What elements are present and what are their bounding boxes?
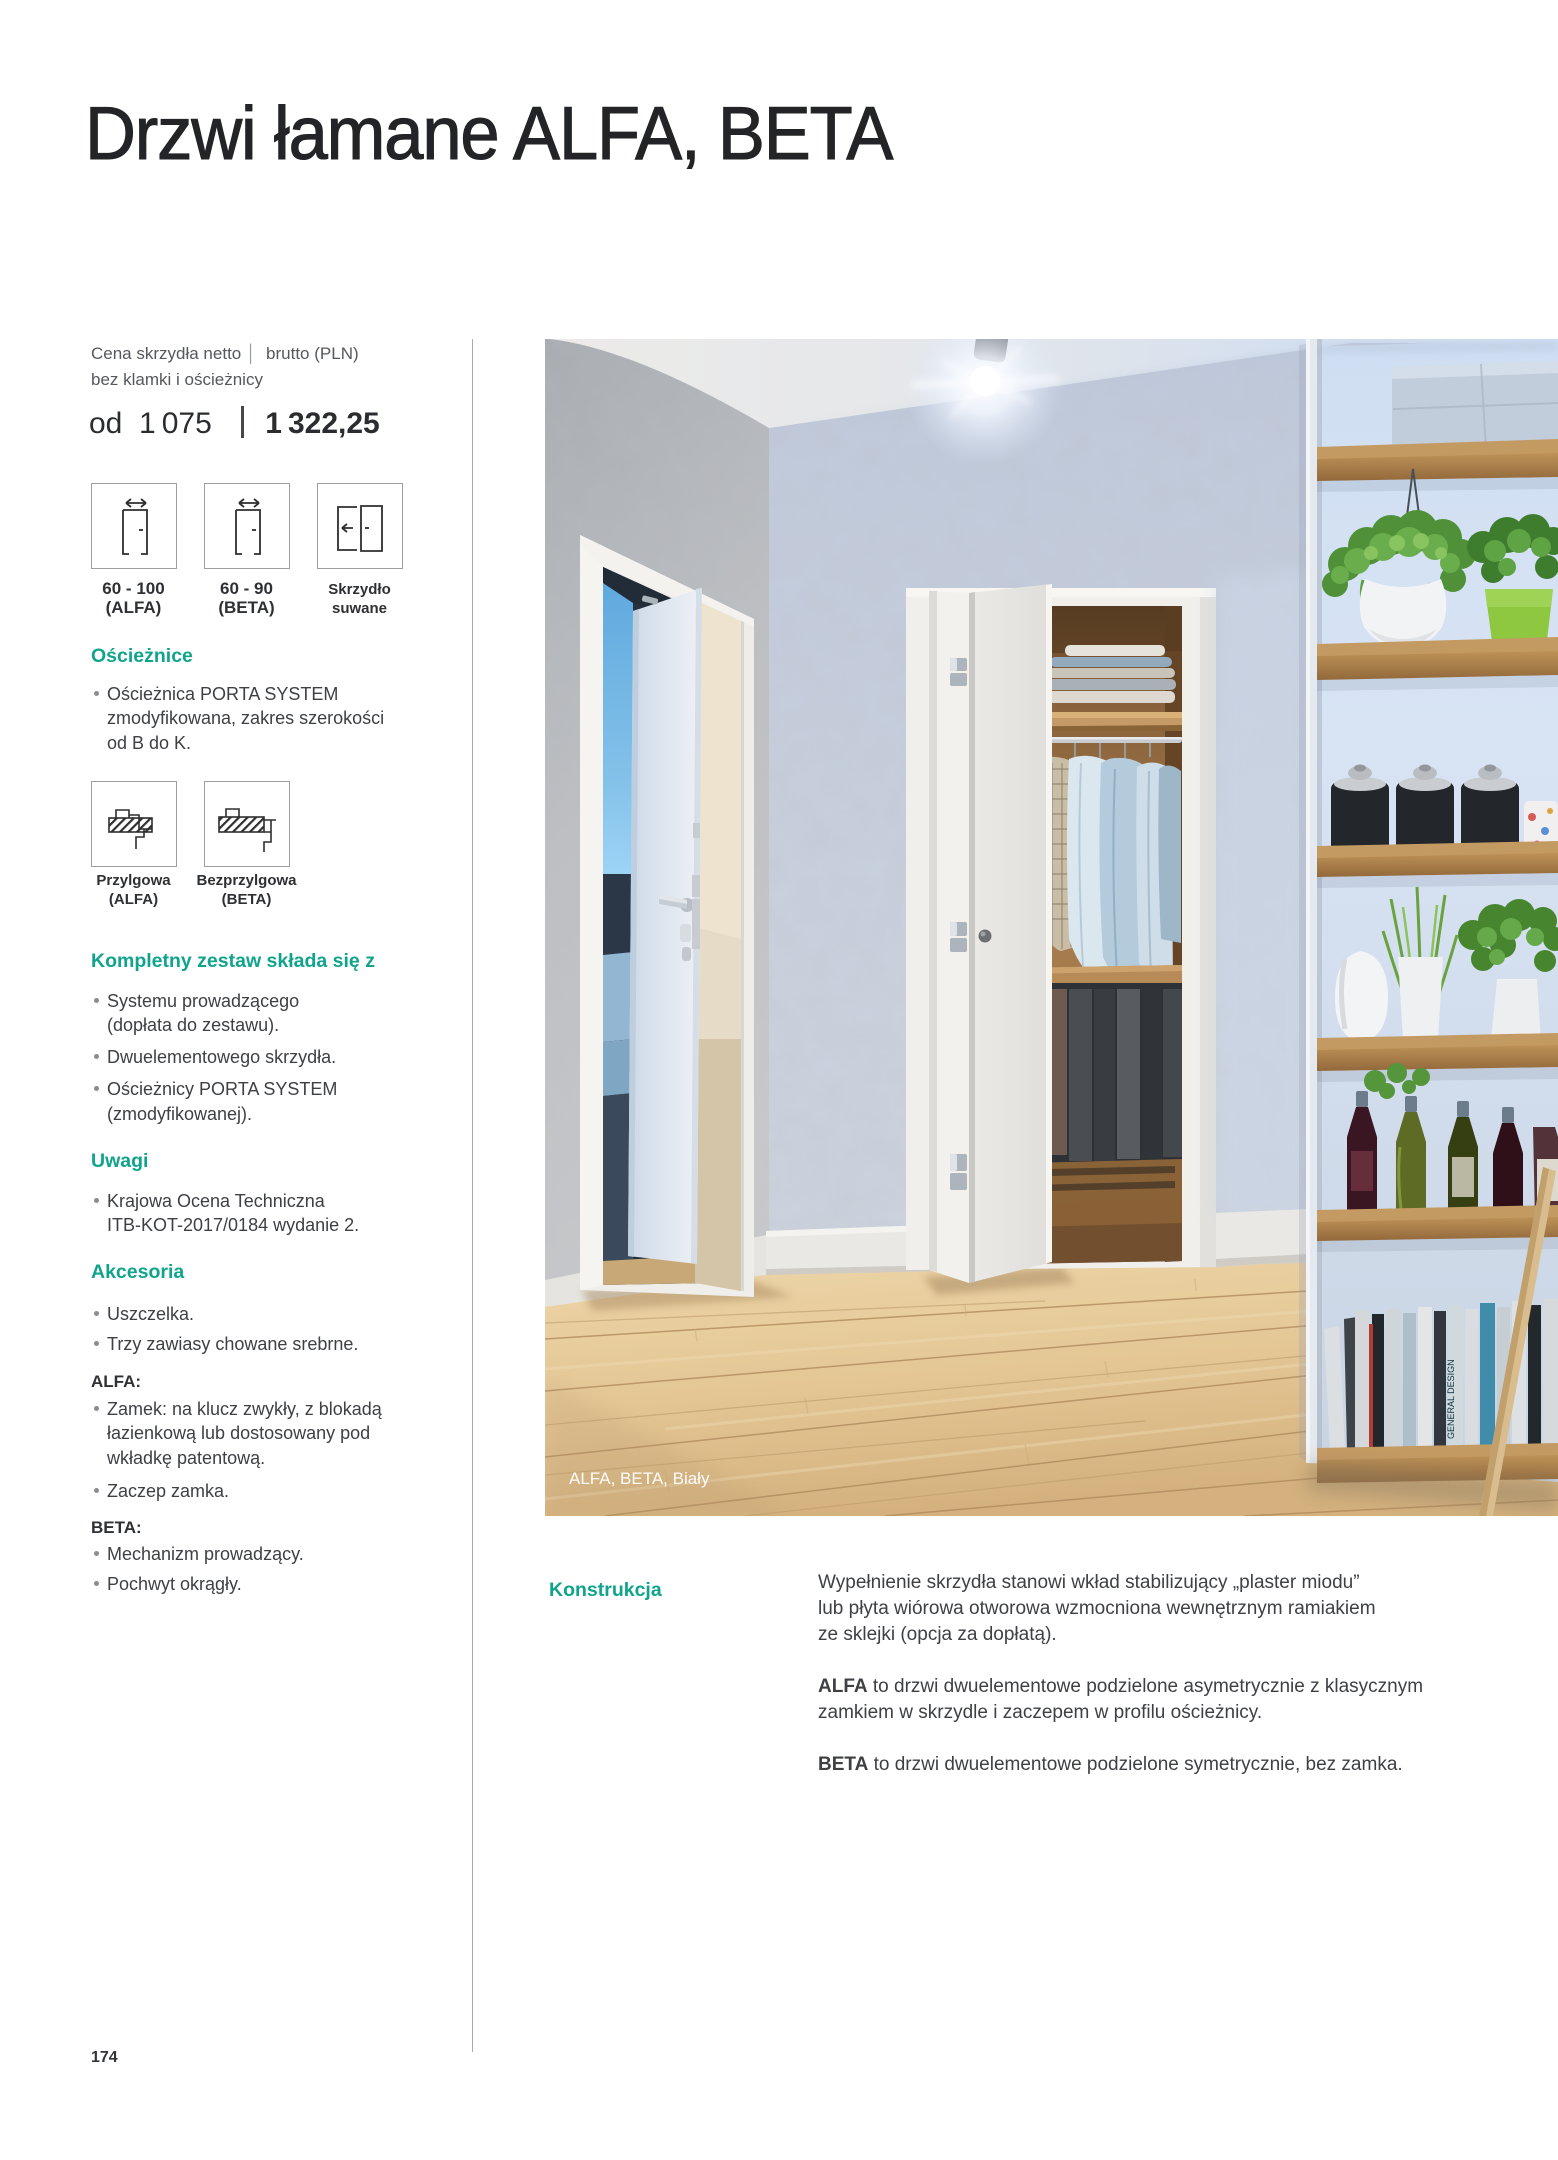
svg-text:GENERAL DESIGN: GENERAL DESIGN <box>1446 1359 1456 1439</box>
svg-text:ALFA, BETA, Biały: ALFA, BETA, Biały <box>569 1469 710 1488</box>
